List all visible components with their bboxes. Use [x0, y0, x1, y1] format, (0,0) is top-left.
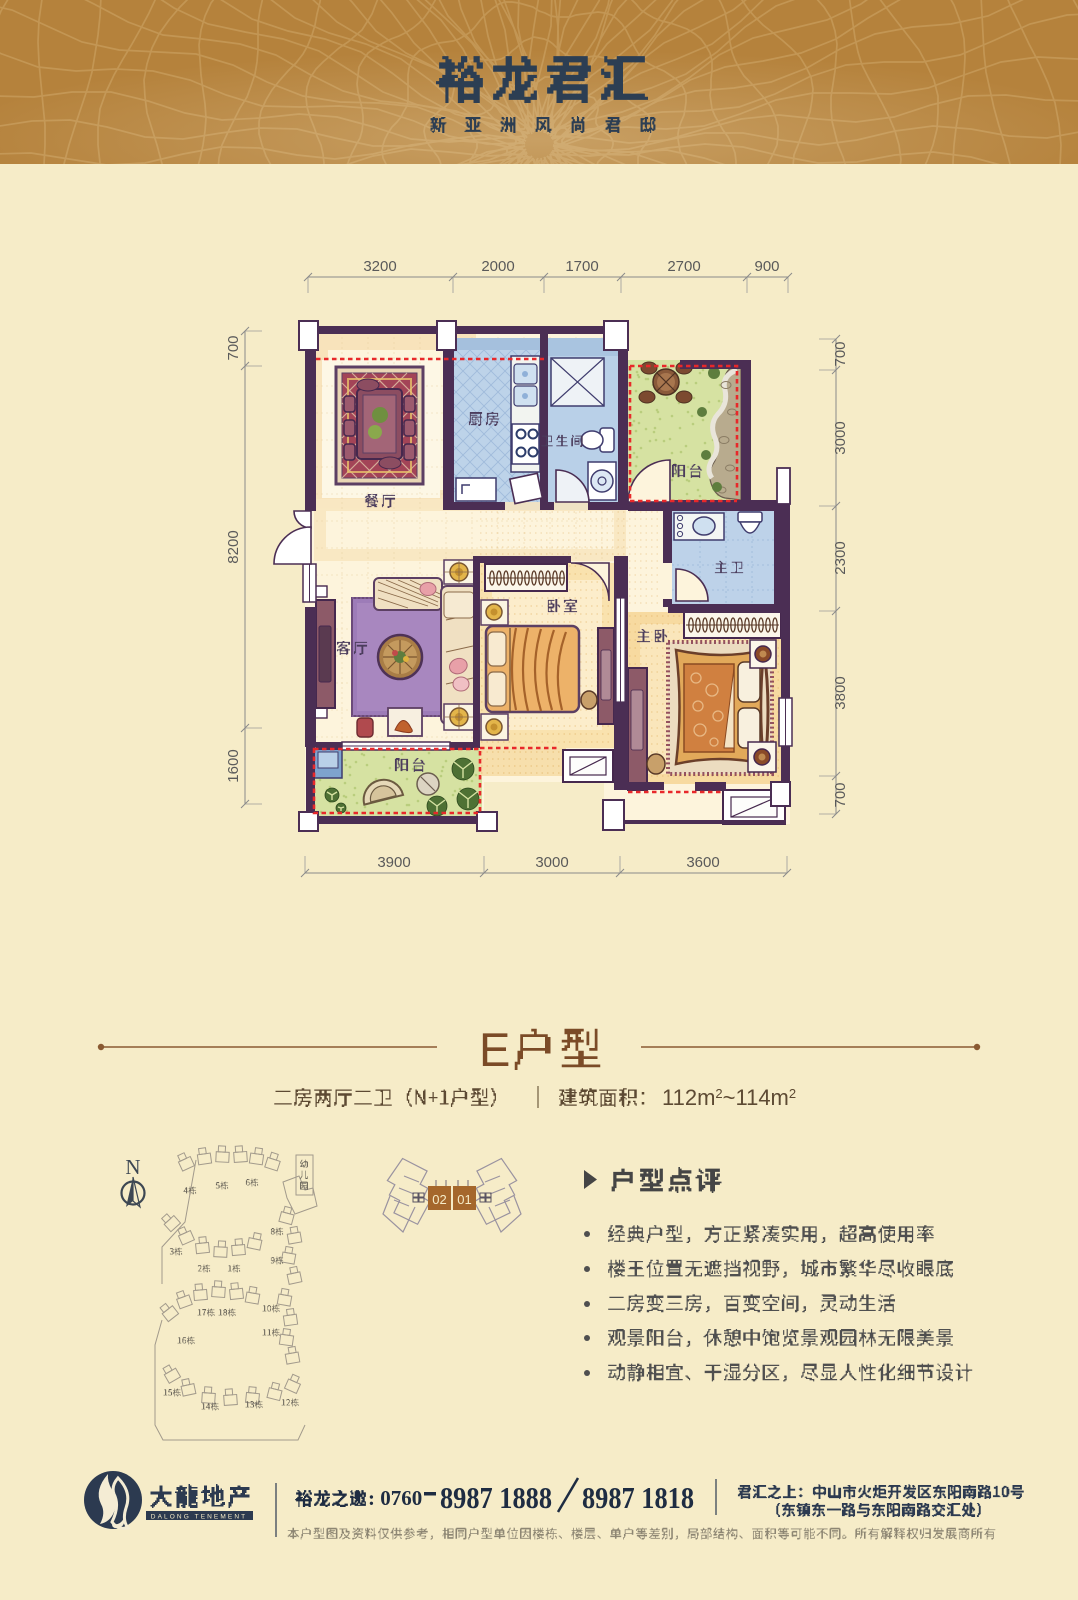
svg-text:8987 1818: 8987 1818: [582, 1480, 694, 1515]
svg-text:3000: 3000: [832, 421, 849, 454]
svg-text:N: N: [125, 1155, 140, 1179]
svg-text:2000: 2000: [481, 258, 514, 275]
svg-text:3200: 3200: [363, 258, 396, 275]
svg-text:700: 700: [832, 782, 849, 807]
svg-text:E: E: [479, 1023, 510, 1076]
svg-text:1700: 1700: [565, 258, 598, 275]
svg-text:: 0760: : 0760: [368, 1486, 422, 1510]
svg-text:3600: 3600: [686, 854, 719, 871]
svg-text:900: 900: [754, 258, 779, 275]
svg-text:01: 01: [457, 1192, 471, 1207]
svg-text:3000: 3000: [535, 854, 568, 871]
svg-text:2300: 2300: [832, 541, 849, 574]
svg-text:3900: 3900: [377, 854, 410, 871]
svg-text:3800: 3800: [832, 676, 849, 709]
svg-text:1600: 1600: [225, 749, 242, 782]
svg-text:112m2~114m2: 112m2~114m2: [662, 1085, 796, 1110]
svg-text:700: 700: [832, 341, 849, 366]
svg-text:8200: 8200: [225, 530, 242, 563]
svg-text:700: 700: [225, 335, 242, 360]
svg-text:2700: 2700: [667, 258, 700, 275]
svg-text:8987 1888: 8987 1888: [440, 1480, 552, 1515]
svg-text:02: 02: [432, 1192, 446, 1207]
svg-text:DALONG TENEMENT: DALONG TENEMENT: [151, 1514, 247, 1521]
